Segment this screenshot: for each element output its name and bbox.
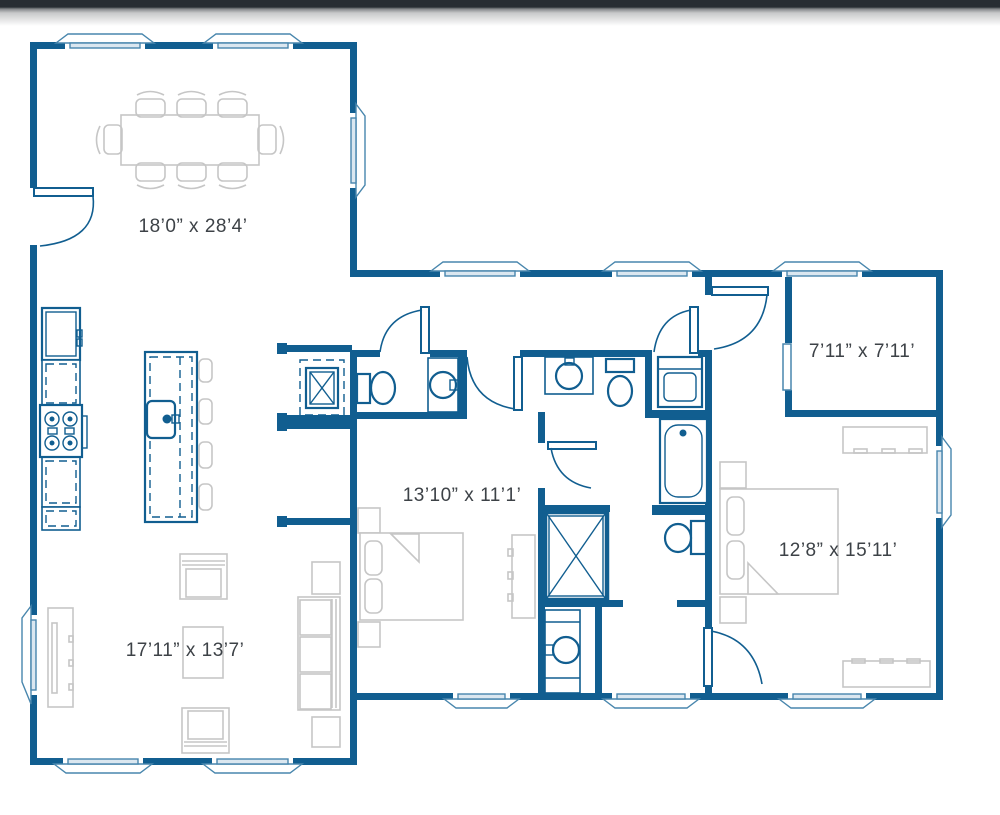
window	[444, 693, 519, 708]
bedroom-2-furniture	[358, 508, 535, 647]
window	[936, 437, 951, 527]
window	[203, 758, 302, 773]
sink-vanity	[428, 358, 458, 412]
refrigerator	[42, 308, 82, 360]
window	[779, 693, 875, 708]
island-sink	[147, 401, 179, 438]
room-dimension-label-great-room: 18’0” x 28’4’	[139, 216, 248, 238]
armchair	[182, 708, 229, 753]
stove	[40, 405, 87, 457]
armchair	[180, 554, 227, 599]
toilet	[606, 359, 634, 406]
toilet	[665, 521, 706, 554]
bathtub	[660, 419, 707, 503]
tv-console	[48, 608, 73, 707]
sink-vanity	[545, 610, 580, 693]
window	[350, 104, 365, 197]
door-swing	[467, 357, 522, 410]
kitchen-island	[145, 352, 197, 522]
side-table	[312, 562, 340, 594]
bar-stools	[199, 359, 212, 510]
room-dimension-label-closet: 7’11” x 7’11’	[809, 341, 915, 363]
shower	[545, 512, 607, 600]
window	[773, 262, 871, 277]
window	[204, 34, 302, 49]
door-swing	[654, 307, 698, 353]
appliance	[658, 357, 702, 407]
window	[431, 262, 529, 277]
room-dimension-label-bedroom-2: 13’10” x 11’1’	[403, 485, 522, 507]
nightstand	[720, 597, 746, 623]
door-swing	[548, 442, 596, 488]
window	[603, 693, 699, 708]
side-table	[312, 717, 340, 747]
dresser	[843, 659, 930, 687]
window	[54, 758, 152, 773]
door-swing	[380, 307, 429, 353]
window	[22, 606, 37, 704]
room-dimension-label-master-bedroom: 12’8” x 15’11’	[779, 540, 898, 562]
door-swing	[704, 628, 762, 686]
dining-set	[97, 92, 284, 189]
washer-dryer	[300, 360, 344, 415]
closet-door	[783, 344, 791, 390]
powder-room	[357, 358, 458, 412]
dresser	[508, 535, 535, 618]
sink-vanity	[545, 357, 593, 394]
toilet	[357, 372, 395, 404]
dining-table	[121, 115, 259, 165]
door-swing	[712, 287, 768, 349]
window	[56, 34, 154, 49]
sofa	[298, 597, 340, 710]
nightstand	[358, 508, 380, 533]
dresser	[843, 427, 927, 453]
floor-plan-drawing	[0, 0, 1000, 815]
window	[603, 262, 701, 277]
nightstand	[720, 462, 746, 488]
room-dimension-label-living-room: 17’11” x 13’7’	[126, 640, 245, 662]
entry-door-swing	[34, 188, 93, 246]
nightstand	[358, 622, 380, 647]
hall-bath	[545, 357, 707, 503]
floor-plan-page: 18’0” x 28’4’ 7’11” x 7’11’ 13’10” x 11’…	[0, 0, 1000, 815]
bed	[360, 533, 463, 620]
